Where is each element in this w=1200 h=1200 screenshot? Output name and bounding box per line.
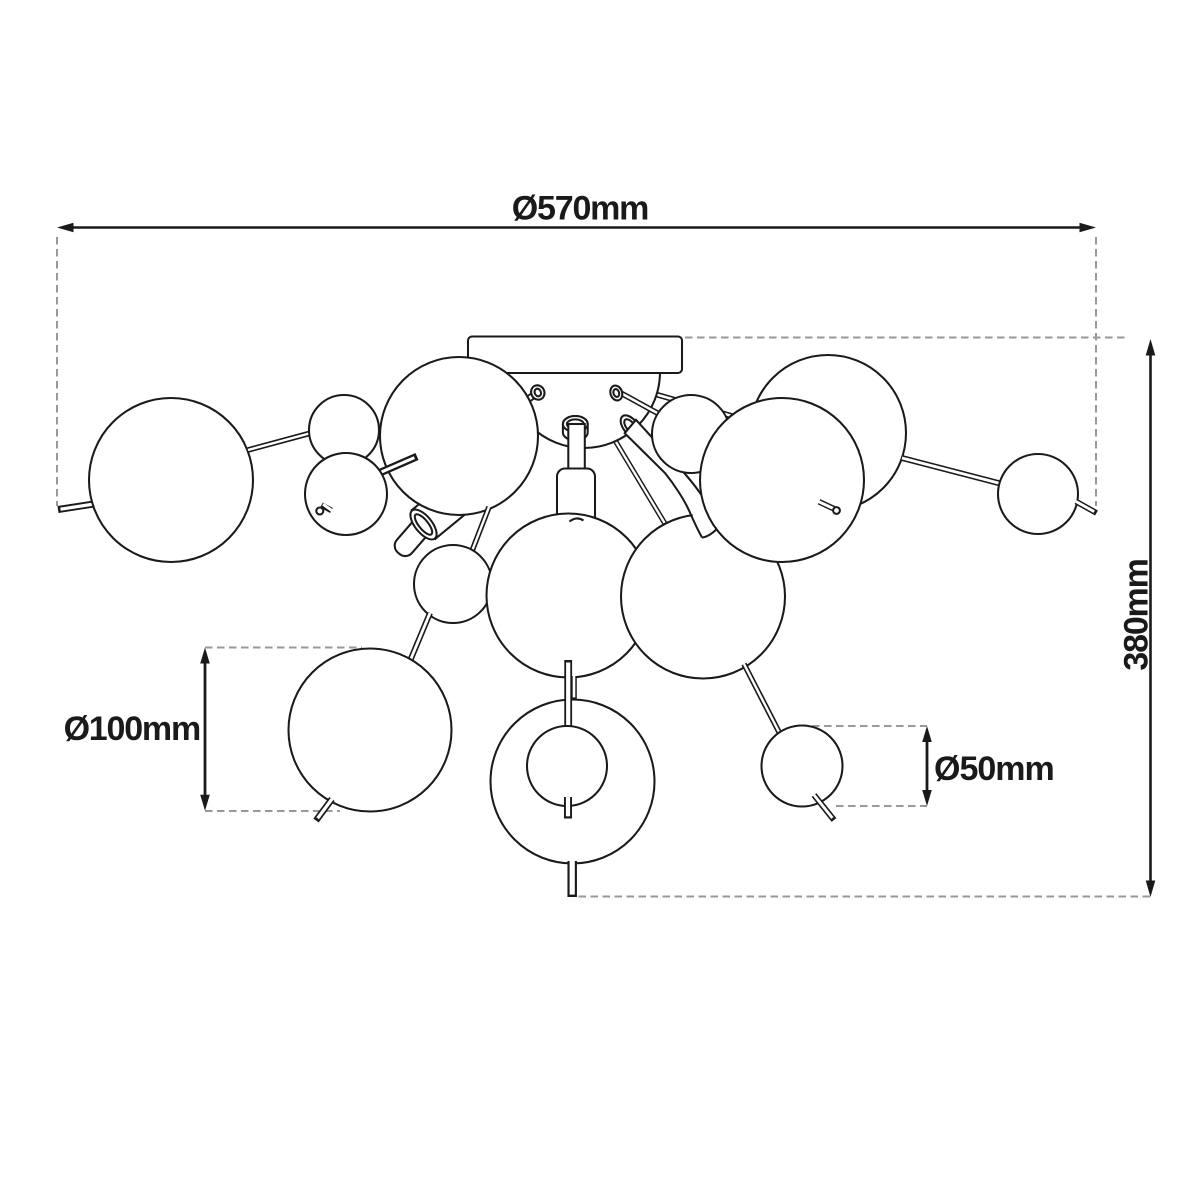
svg-text:Ø100mm: Ø100mm	[64, 710, 200, 748]
svg-text:Ø570mm: Ø570mm	[512, 190, 648, 228]
svg-text:380mm: 380mm	[1118, 559, 1156, 670]
svg-text:Ø50mm: Ø50mm	[934, 750, 1054, 788]
